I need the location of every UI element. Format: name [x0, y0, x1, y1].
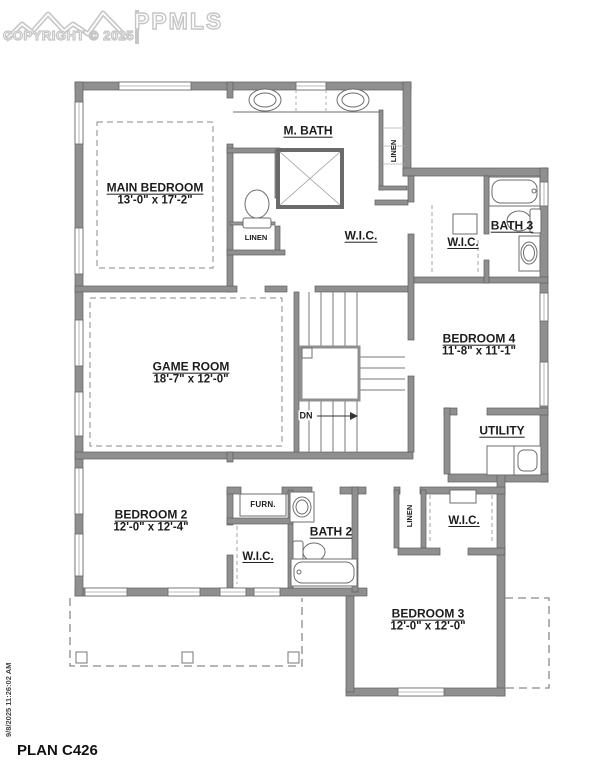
ppmls-wordmark: PPMLS	[134, 8, 223, 35]
bath3-tub	[489, 177, 540, 206]
mbath-toilet	[243, 190, 271, 228]
bath3-vanity	[519, 236, 540, 271]
label-game-room: GAME ROOM 18'-7" x 12'-0"	[153, 361, 230, 386]
plan-title: PLAN C426	[17, 742, 98, 759]
label-linen-wc: LINEN	[245, 234, 268, 242]
utility-washer-dryer	[487, 446, 541, 475]
floor-plan-page: PPMLS COPYRIGHT © 2025 M. BATH MAIN BEDR…	[0, 0, 614, 768]
label-bath3: BATH 3	[491, 220, 533, 233]
ppmls-logo: PPMLS COPYRIGHT © 2025	[0, 0, 200, 65]
porch-posts	[76, 652, 299, 663]
label-main-bedroom: MAIN BEDROOM 13'-0" x 17'-2"	[107, 182, 204, 207]
label-m-bath: M. BATH	[283, 125, 332, 138]
label-utility: UTILITY	[479, 425, 524, 438]
label-wic-bedroom3: W.I.C.	[448, 515, 479, 527]
label-wic-main: W.I.C.	[345, 230, 378, 243]
label-wic-bedroom2: W.I.C.	[242, 551, 273, 563]
bath2-vanity	[290, 492, 314, 522]
down-arrow	[317, 412, 358, 420]
floor-plan-drawing	[0, 0, 614, 768]
wic-bath3-island	[453, 214, 477, 234]
mbath-shower	[278, 150, 342, 207]
copyright-text: COPYRIGHT © 2025	[3, 28, 134, 43]
label-linen-hall: LINEN	[406, 505, 414, 528]
stair-landing	[301, 347, 359, 400]
staircase	[301, 292, 405, 452]
label-wic-bath3: W.I.C.	[447, 237, 478, 249]
label-bedroom2: BEDROOM 2 12'-0" x 12'-4"	[113, 509, 188, 534]
label-bedroom3: BEDROOM 3 12'-0" x 12'-0"	[390, 608, 465, 633]
patio-roof-outline	[505, 598, 549, 688]
print-timestamp: 9/8/2025 11:26:02 AM	[4, 663, 13, 737]
label-furnace: FURN.	[250, 501, 275, 509]
label-bedroom4: BEDROOM 4 11'-8" x 11'-1"	[442, 333, 516, 358]
label-linen-mbath: LINEN	[390, 140, 398, 163]
label-bath2: BATH 2	[310, 526, 352, 539]
bath2-tub	[291, 559, 357, 586]
label-stairs-down: DN	[299, 411, 314, 420]
